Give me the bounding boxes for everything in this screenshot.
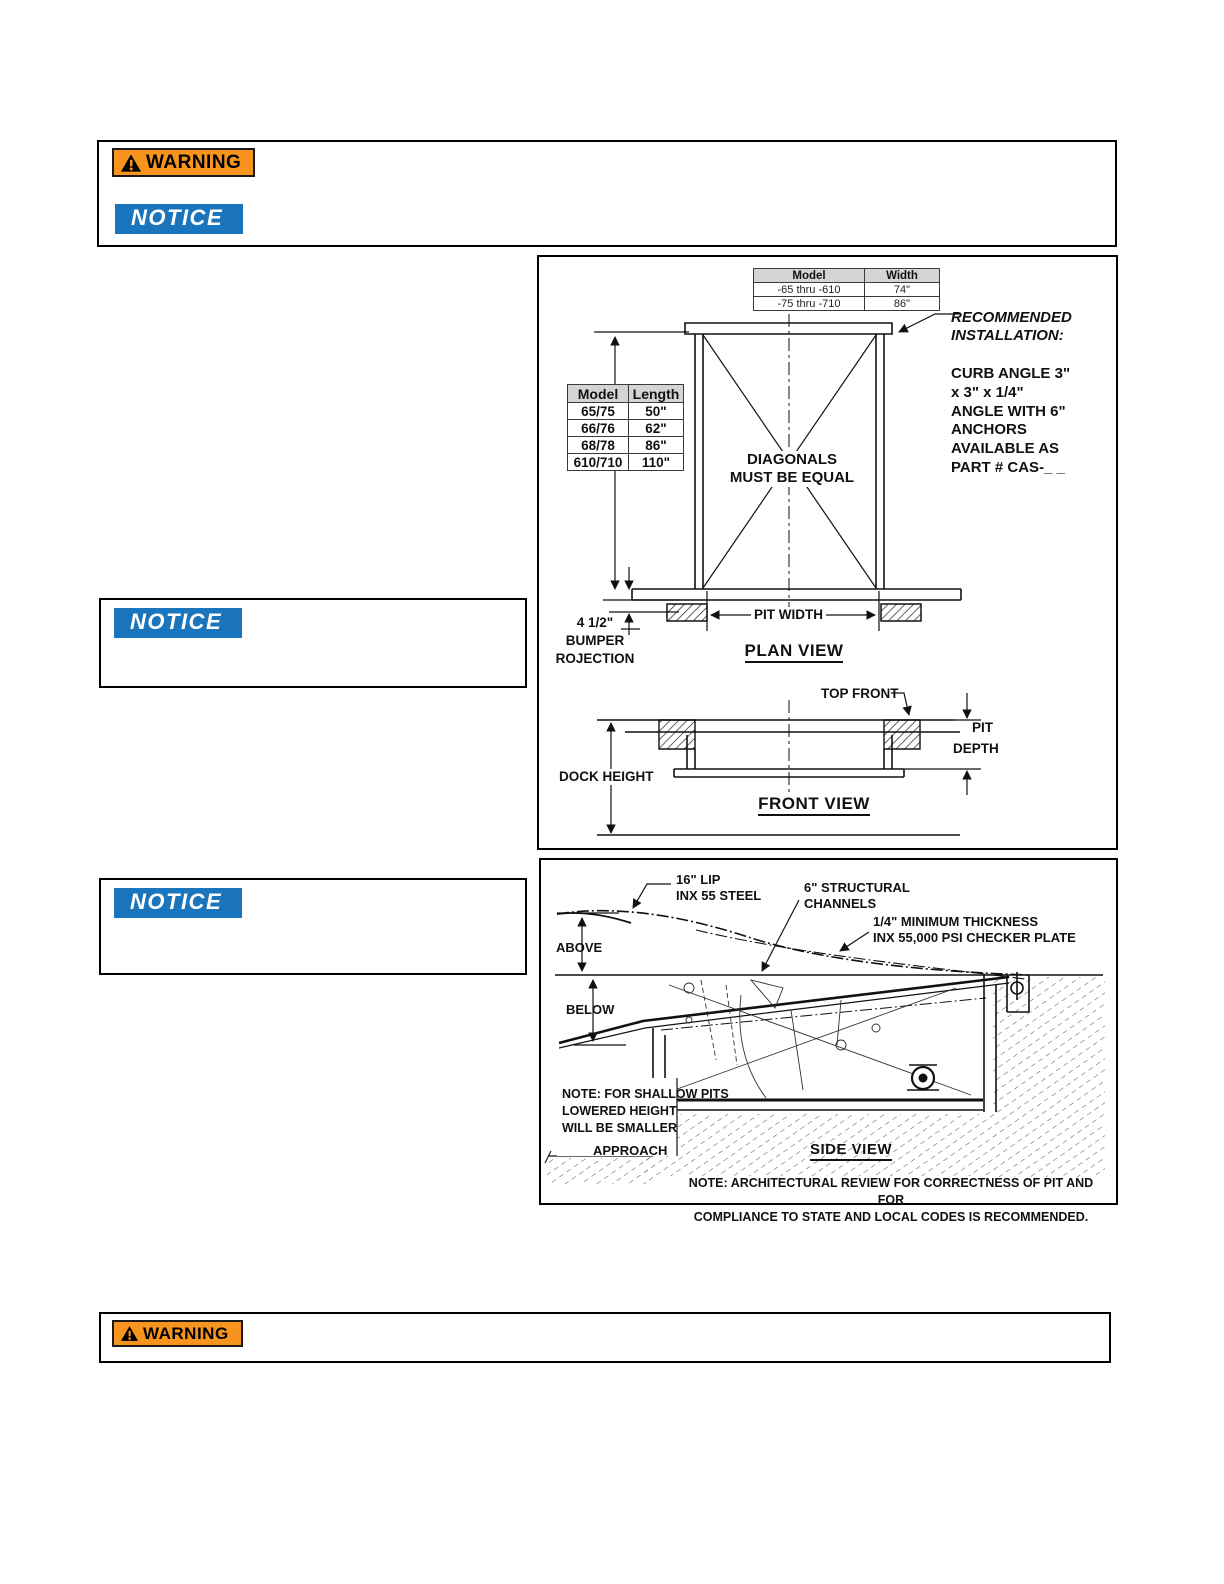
notice-badge: NOTICE: [114, 888, 242, 918]
pit-depth-label-pit: PIT: [972, 720, 993, 736]
recommended-installation-leader: [899, 314, 959, 332]
label-line: INX 55,000 PSI CHECKER PLATE: [873, 930, 1076, 946]
heading-line: INSTALLATION:: [951, 327, 1072, 345]
label-line: 16" LIP: [676, 872, 761, 888]
notice-box-2: NOTICE: [99, 878, 527, 975]
note-line: NOTE: ARCHITECTURAL REVIEW FOR CORRECTNE…: [676, 1175, 1106, 1209]
table-header: Width: [865, 269, 940, 283]
label-line: CHANNELS: [804, 896, 910, 912]
channels-leader: [762, 900, 799, 971]
table-cell: 610/710: [568, 454, 629, 471]
top-warning-notice-box: WARNING NOTICE: [97, 140, 1117, 247]
table-cell: -65 thru -610: [754, 283, 865, 297]
table-cell: 66/76: [568, 420, 629, 437]
title-text: SIDE VIEW: [810, 1141, 892, 1161]
warning-label-text: WARNING: [143, 1325, 229, 1342]
rear-roller: [907, 1065, 939, 1090]
table-row: -65 thru -610 74": [754, 283, 940, 297]
bumper-right: [881, 604, 921, 621]
table-cell: 68/78: [568, 437, 629, 454]
front-view-right-block: [884, 720, 920, 749]
table-row: 66/76 62": [568, 420, 684, 437]
notice-badge: NOTICE: [114, 608, 242, 638]
warning-badge: WARNING: [112, 148, 255, 177]
body-line: CURB ANGLE 3": [951, 365, 1070, 384]
pit-depth-label-depth: DEPTH: [953, 741, 999, 757]
title-text: FRONT VIEW: [758, 794, 870, 816]
label-line: ROJECTION: [549, 650, 641, 668]
notice-box-1: NOTICE: [99, 598, 527, 688]
bottom-warning-box: WARNING: [99, 1312, 1111, 1363]
table-header: Length: [629, 385, 684, 403]
model-width-table: Model Width -65 thru -610 74" -75 thru -…: [753, 268, 940, 311]
below-label: BELOW: [566, 1002, 614, 1018]
model-length-table: Model Length 65/75 50" 66/76 62" 68/78 8…: [567, 384, 684, 471]
plate-leader: [840, 932, 869, 951]
pit-width-label: PIT WIDTH: [751, 607, 826, 623]
bumper-projection-label: 4 1/2" BUMPER ROJECTION: [549, 614, 641, 669]
label-line: 6" STRUCTURAL: [804, 880, 910, 896]
front-view-title: FRONT VIEW: [739, 794, 889, 814]
front-view-left-block: [659, 720, 695, 749]
diagonals-note: DIAGONALS MUST BE EQUAL: [721, 451, 863, 487]
table-cell: 86": [629, 437, 684, 454]
table-row: 610/710 110": [568, 454, 684, 471]
table-header: Model: [754, 269, 865, 283]
approach-label: APPROACH: [593, 1143, 667, 1159]
note-line: COMPLIANCE TO STATE AND LOCAL CODES IS R…: [676, 1209, 1106, 1226]
table-header: Model: [568, 385, 629, 403]
table-row: 68/78 86": [568, 437, 684, 454]
manual-page: WARNING NOTICE NOTICE NOTICE WARNING: [0, 0, 1224, 1584]
warning-label-text: WARNING: [146, 153, 241, 172]
checker-plate-label: 1/4" MINIMUM THICKNESS INX 55,000 PSI CH…: [873, 914, 1076, 945]
table-cell: 110": [629, 454, 684, 471]
table-row: 65/75 50": [568, 403, 684, 420]
note-line: LOWERED HEIGHT: [562, 1103, 729, 1120]
lip-label: 16" LIP INX 55 STEEL: [676, 872, 761, 903]
note-line: DIAGONALS: [724, 451, 860, 469]
label-line: INX 55 STEEL: [676, 888, 761, 904]
notice-badge: NOTICE: [115, 204, 243, 234]
lip-raised-edge: [557, 913, 631, 923]
side-view-title: SIDE VIEW: [791, 1141, 911, 1159]
recommended-installation-body: CURB ANGLE 3" x 3" x 1/4" ANGLE WITH 6" …: [951, 365, 1070, 478]
plan-view-title: PLAN VIEW: [724, 641, 864, 661]
dock-height-label: DOCK HEIGHT: [556, 769, 657, 785]
top-front-label: TOP FRONT: [821, 686, 899, 702]
body-line: AVAILABLE AS: [951, 440, 1070, 459]
plan-front-drawing: [539, 257, 1116, 848]
side-view-diagram-box: 16" LIP INX 55 STEEL 6" STRUCTURAL CHANN…: [539, 858, 1118, 1205]
warning-badge: WARNING: [112, 1320, 243, 1347]
lip-leader: [633, 884, 671, 908]
heading-line: RECOMMENDED: [951, 309, 1072, 327]
above-label: ABOVE: [556, 940, 602, 956]
note-line: NOTE: FOR SHALLOW PITS: [562, 1086, 729, 1103]
body-line: ANGLE WITH 6": [951, 403, 1070, 422]
body-line: x 3" x 1/4": [951, 384, 1070, 403]
recommended-installation-heading: RECOMMENDED INSTALLATION:: [951, 309, 1072, 345]
architectural-review-note: NOTE: ARCHITECTURAL REVIEW FOR CORRECTNE…: [676, 1175, 1106, 1226]
note-line: WILL BE SMALLER: [562, 1120, 729, 1137]
table-cell: 50": [629, 403, 684, 420]
note-line: MUST BE EQUAL: [724, 469, 860, 487]
body-line: PART # CAS-_ _: [951, 459, 1070, 478]
table-row: -75 thru -710 86": [754, 297, 940, 311]
table-cell: 74": [865, 283, 940, 297]
deck-lowered-outline: [559, 977, 1009, 1048]
plan-front-diagram-box: Model Width -65 thru -610 74" -75 thru -…: [537, 255, 1118, 850]
warning-triangle-icon: [121, 154, 141, 172]
table-cell: 62": [629, 420, 684, 437]
label-line: BUMPER: [549, 632, 641, 650]
table-cell: 86": [865, 297, 940, 311]
warning-triangle-icon: [121, 1326, 138, 1341]
label-line: 4 1/2": [549, 614, 641, 632]
table-cell: -75 thru -710: [754, 297, 865, 311]
shallow-pit-note: NOTE: FOR SHALLOW PITS LOWERED HEIGHT WI…: [562, 1086, 729, 1137]
body-line: ANCHORS: [951, 421, 1070, 440]
table-cell: 65/75: [568, 403, 629, 420]
label-line: 1/4" MINIMUM THICKNESS: [873, 914, 1076, 930]
structural-channels-label: 6" STRUCTURAL CHANNELS: [804, 880, 910, 911]
title-text: PLAN VIEW: [745, 641, 844, 663]
